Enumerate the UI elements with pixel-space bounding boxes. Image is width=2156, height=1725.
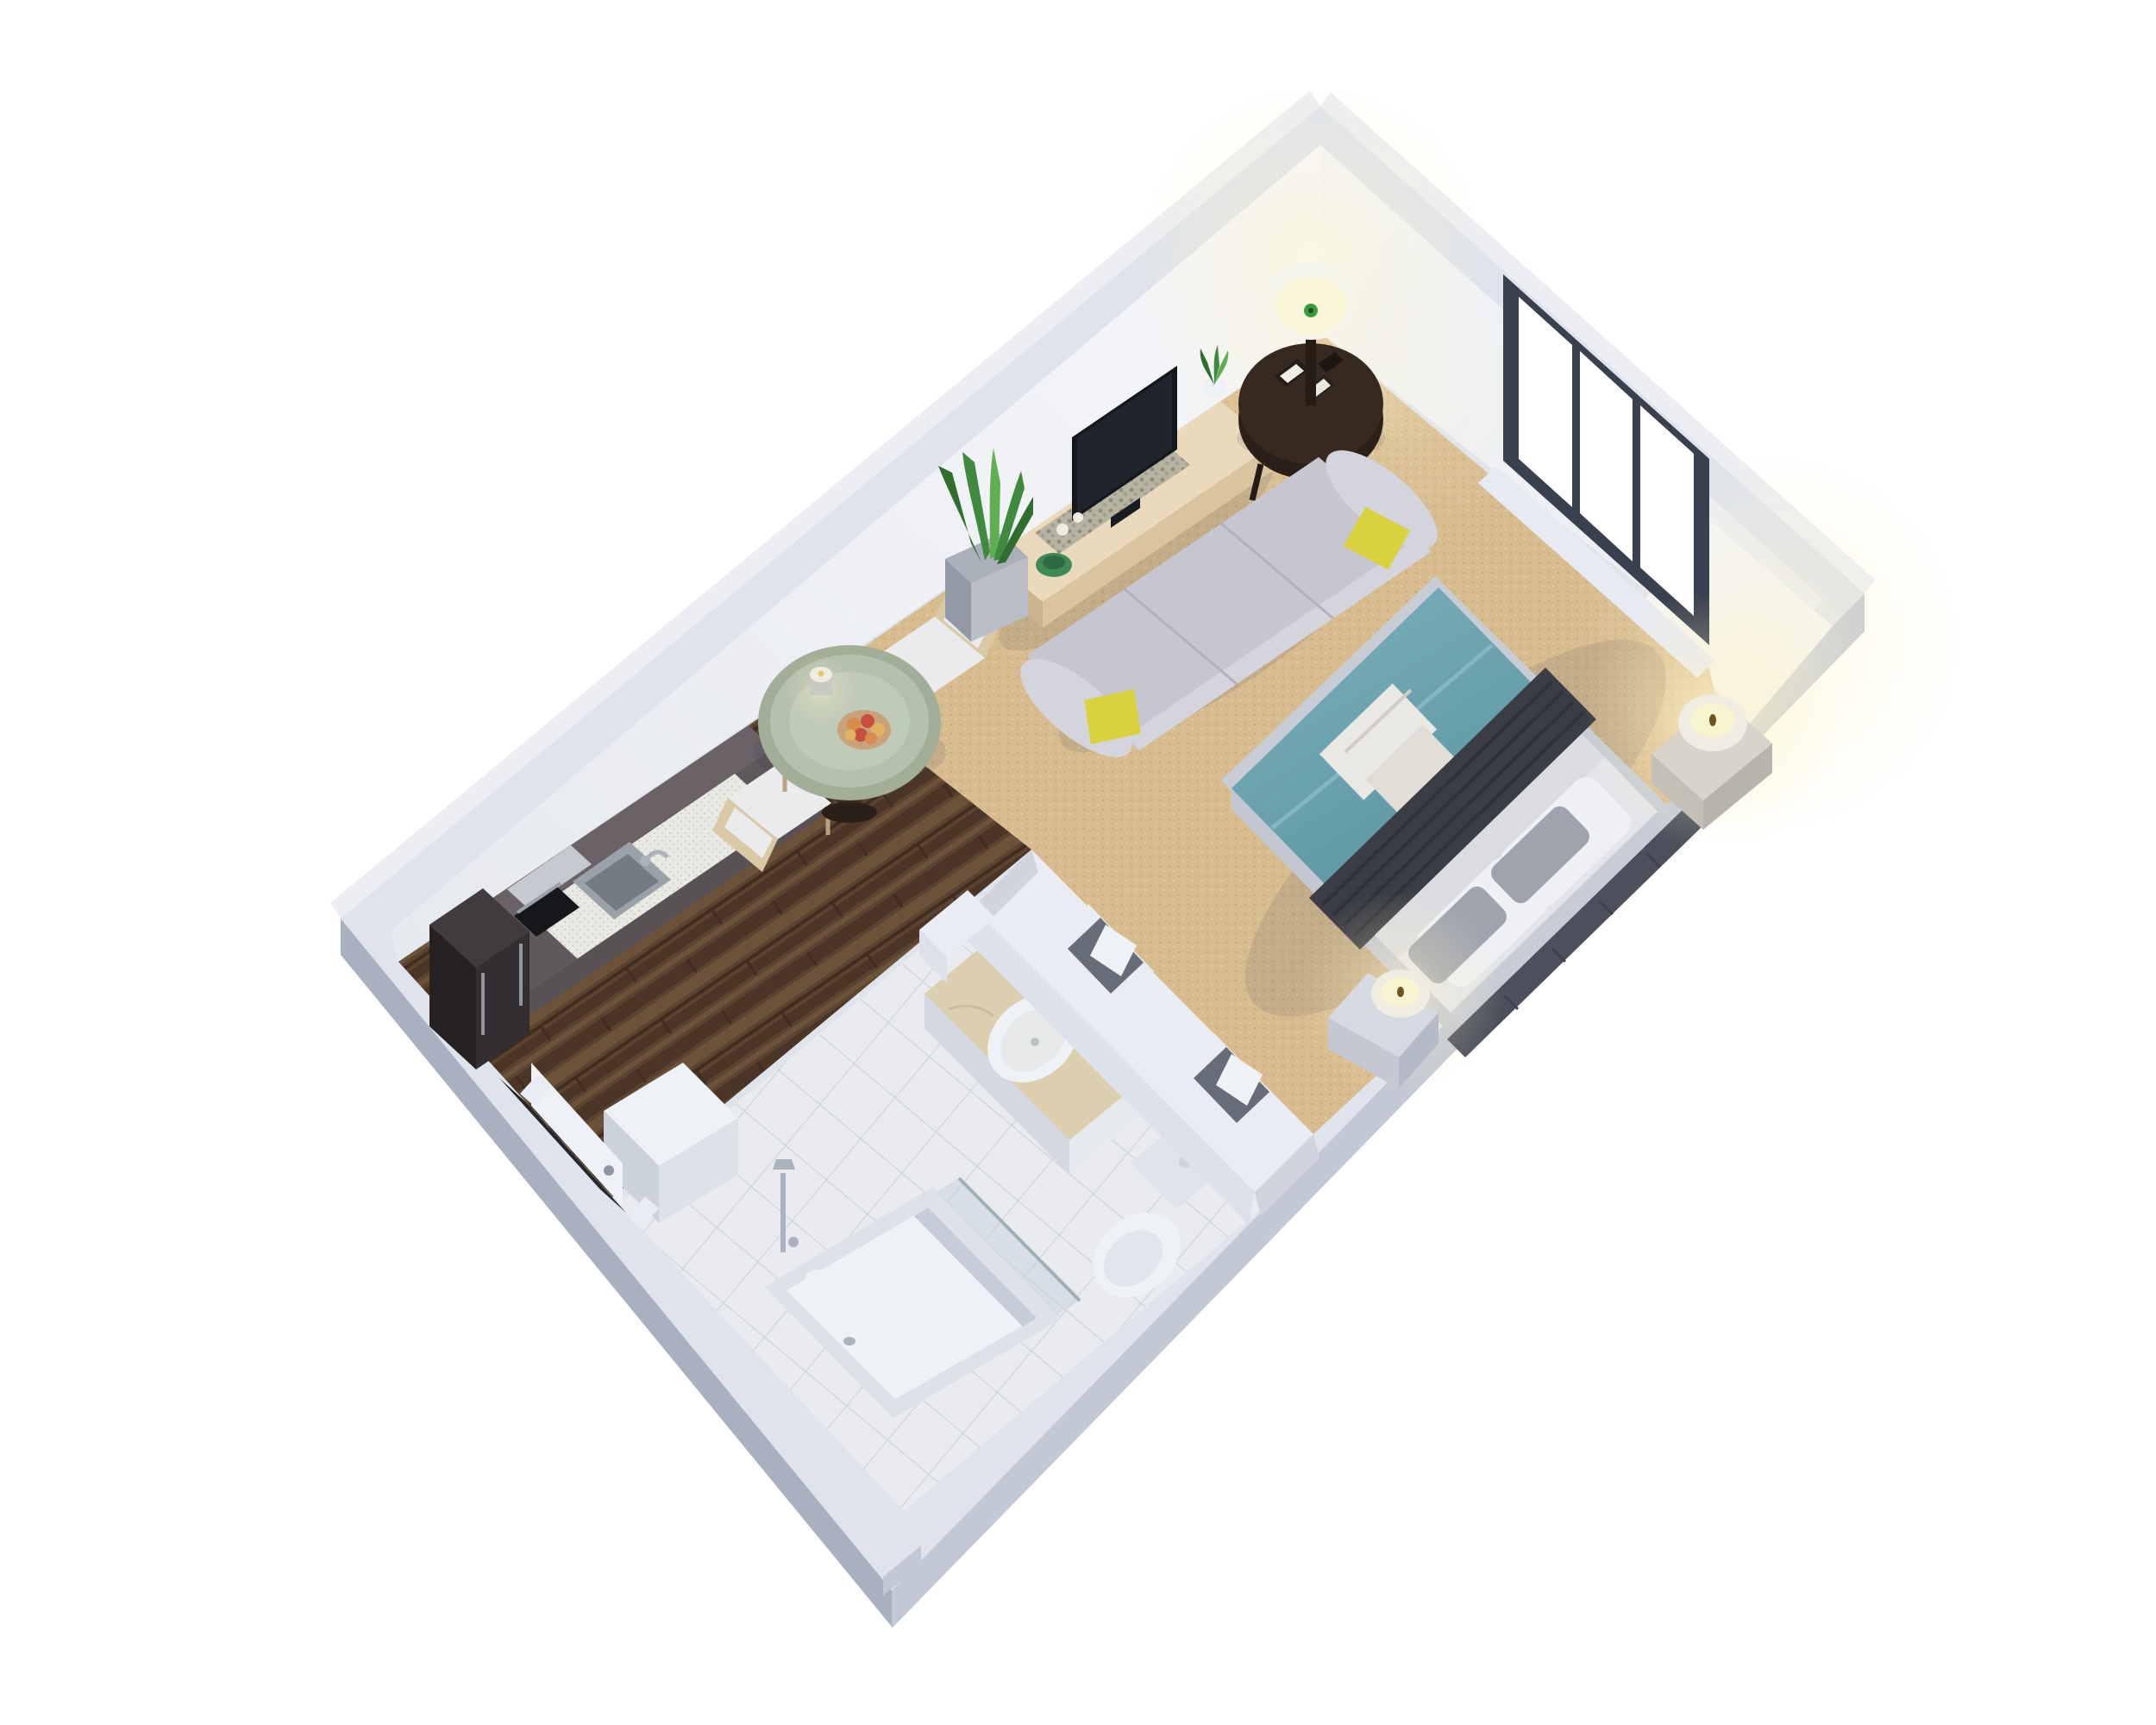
candle-flame xyxy=(818,671,824,677)
candlestick xyxy=(1056,524,1069,536)
candle-wick xyxy=(1709,714,1716,726)
candle-wick xyxy=(1397,987,1404,997)
toilet-paper-roll xyxy=(805,1270,830,1287)
fruit xyxy=(865,732,877,744)
sink-drain xyxy=(1031,1038,1039,1046)
tub-drain xyxy=(843,1337,856,1345)
door-handle xyxy=(604,1165,614,1176)
floorplan-stage xyxy=(0,0,2156,1725)
green-bowl-inner xyxy=(1043,555,1065,569)
candlestick xyxy=(1073,512,1083,523)
lamp-bulb-center xyxy=(1308,308,1313,313)
fruit-bowl xyxy=(837,710,891,750)
shower-head xyxy=(773,1159,795,1170)
table-foot xyxy=(822,802,877,823)
shower-valve xyxy=(788,1237,799,1247)
nightstand-corner xyxy=(1583,592,1842,850)
nightstand-headboard-side xyxy=(1297,890,1504,1097)
table-candle xyxy=(787,655,856,724)
floorplan-render xyxy=(0,0,2156,1725)
fruit xyxy=(845,730,856,741)
